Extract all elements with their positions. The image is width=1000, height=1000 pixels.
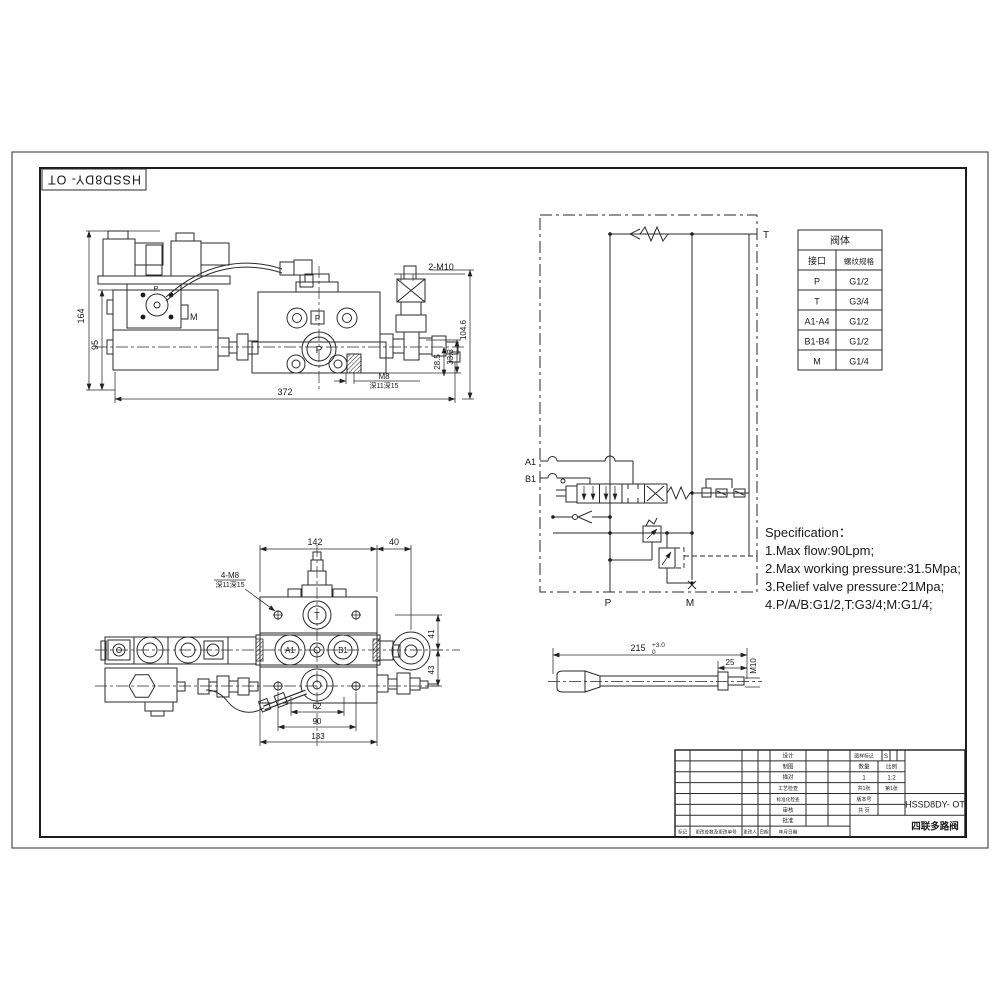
dim-164: 164 (76, 308, 86, 323)
hydraulic-schematic: A1 B1 (525, 215, 769, 609)
titleblock-sign-row: 批准 (782, 817, 794, 825)
port-table-cell: P (814, 277, 820, 287)
titleblock-qty-value: 1 (862, 775, 866, 781)
dim-m8-note: 深11深15 (369, 381, 398, 390)
titleblock-bottom-cell: 日期 (760, 830, 769, 836)
titleblock-scale-value: 1:2 (887, 775, 896, 781)
port-table-cell: G1/4 (849, 357, 869, 367)
port-table-cell: G1/2 (849, 337, 869, 347)
port-table-cell: T (814, 297, 820, 307)
port-table-cell: B1-B4 (804, 337, 829, 347)
titleblock-sign-row: 审核 (782, 806, 794, 814)
spec-line-1: 1.Max flow:90Lpm; (765, 543, 874, 558)
sheet-border (12, 152, 988, 848)
top-view-b1-label: B1 (338, 646, 348, 655)
titleblock-sign-row: 制图 (782, 762, 794, 770)
titleblock-sign-row: 描对 (782, 773, 794, 781)
dim-4-m8: 4-M8 (221, 571, 240, 580)
dim-104-6: 104.6 (459, 319, 468, 340)
dim-4-m8-note: 深11深15 (215, 580, 244, 589)
dim-41: 41 (427, 629, 436, 638)
titleblock-bottom-cell: 年月日期 (779, 829, 798, 836)
titleblock-bottom-cell: 更改处数及更改单号 (695, 829, 737, 836)
side-view-drawing: P M P P (95, 231, 465, 392)
dim-33-3: 33.3 (446, 349, 455, 365)
engineering-drawing: HSSD8DY- OT P M P P (0, 0, 1000, 1000)
specification-block: Specification： 1.Max flow:90Lpm; 2.Max w… (765, 525, 961, 612)
port-table-cell: G1/2 (849, 277, 869, 287)
code-box: HSSD8DY- OT (42, 169, 146, 190)
top-view-dimensions: 142 40 4-M8 深11深15 41 43 62 90 133 (214, 537, 442, 746)
dim-215: 215 (630, 643, 645, 653)
titleblock-scale-label: 比例 (886, 762, 898, 770)
dim-40: 40 (389, 537, 399, 547)
port-table-title: 阀体 (830, 234, 850, 247)
port-table-col-thread: 螺纹规格 (844, 256, 874, 266)
spec-line-2: 2.Max working pressure:31.5Mpa; (765, 561, 961, 576)
port-table-cell: M (813, 357, 821, 367)
schematic-b1-label: B1 (525, 474, 536, 484)
dim-43: 43 (427, 665, 436, 674)
port-table-cell: G3/4 (849, 297, 869, 307)
titleblock-qty-label: 数量 (858, 762, 870, 770)
schematic-p-label: P (605, 598, 612, 609)
dim-90: 90 (313, 717, 322, 726)
schematic-m-label: M (686, 598, 694, 609)
side-view-p-port-label: P (315, 314, 320, 323)
side-view-dimensions: 164 95 372 104.6 28.5 33.3 2-M10 M8 深11深… (76, 231, 474, 403)
spec-line-3: 3.Relief valve pressure:21Mpa; (765, 579, 944, 594)
top-view-a1-label: A1 (285, 646, 295, 655)
port-table-cell: A1-A4 (804, 317, 829, 327)
dim-215-tol-upper: +3.0 (652, 642, 665, 649)
titleblock-bottom-cell: 标记 (678, 829, 687, 836)
lever-drawing: 215 +3.0 0 25 M10 (548, 642, 762, 692)
titleblock-sign-row: 标准化检查 (777, 796, 800, 803)
spec-line-4: 4.P/A/B:G1/2,T:G3/4;M:G1/4; (765, 597, 933, 612)
dim-95: 95 (90, 340, 100, 350)
drawing-sheet: HSSD8DY- OT P M P P (0, 0, 1000, 1000)
dim-2-m10: 2-M10 (428, 262, 454, 272)
port-table-col-port: 接口 (808, 255, 826, 266)
titleblock-part-name: 四联多路阀 (911, 821, 959, 833)
top-view-drawing: T A1 B1 (95, 545, 460, 748)
schematic-t-label: T (763, 230, 769, 241)
titleblock-sign-row: 工艺检查 (778, 785, 798, 792)
dim-28-5: 28.5 (433, 354, 442, 370)
side-view-pilot-p-label: P (153, 284, 158, 293)
side-view-m-label: M (190, 312, 198, 322)
dim-215-tol-lower: 0 (652, 649, 656, 656)
titleblock-part-code: HSSD8DY- OT (905, 800, 965, 810)
dim-m8: M8 (378, 372, 390, 381)
titleblock-sheets-label: 共1张 (858, 785, 871, 792)
titleblock-bottom-cell: 更改人 (743, 829, 757, 836)
dim-25: 25 (726, 658, 735, 667)
dim-142: 142 (307, 537, 322, 547)
titleblock-stage-label: 图样标记 (854, 753, 873, 760)
dim-m10: M10 (749, 658, 758, 674)
code-box-label: HSSD8DY- OT (47, 173, 141, 187)
titleblock-pages-label: 共 页 (858, 807, 869, 814)
titleblock-stage-value: S (884, 754, 888, 760)
dim-133: 133 (311, 732, 325, 741)
dim-62: 62 (313, 702, 322, 711)
titleblock-sheet-no-label: 第1张 (885, 785, 898, 792)
port-table-cell: G1/2 (849, 317, 869, 327)
dim-372: 372 (277, 387, 292, 397)
spec-title: Specification： (765, 525, 852, 540)
title-block: 设计 制图 描对 工艺检查 标准化检查 审核 批准 标记 更改处数及更改单号 更… (675, 750, 965, 837)
titleblock-version-label: 版本号 (856, 796, 871, 803)
titleblock-sign-row: 设计 (782, 752, 794, 760)
schematic-a1-label: A1 (525, 457, 536, 467)
port-table: 阀体 接口 螺纹规格 P G1/2 T G3/4 A1-A4 G1/2 B1-B… (798, 230, 882, 370)
